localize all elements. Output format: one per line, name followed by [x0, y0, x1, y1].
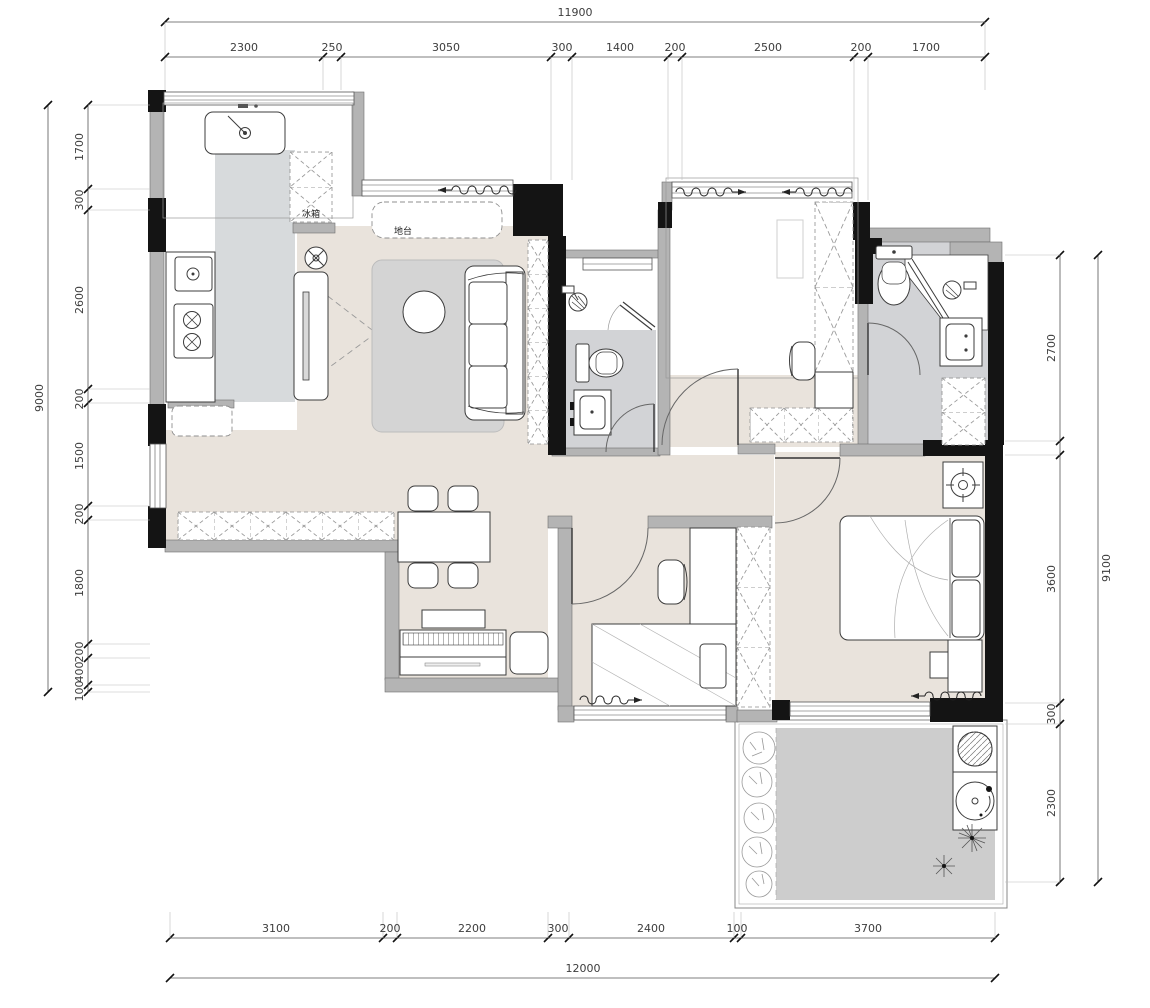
bedroom2-desk [815, 372, 853, 408]
dining-chair[interactable] [408, 486, 438, 511]
bedroom2-bottom-wardrobe [750, 408, 853, 442]
bathroom2-sink [940, 318, 982, 366]
dim-right-overall: 9100 [1100, 554, 1113, 582]
kitchen-sink [175, 257, 212, 291]
dim-top-seg2: 3050 [432, 41, 460, 54]
shower-glass-door[interactable] [620, 302, 655, 330]
platform-daybed [372, 202, 502, 238]
dim-bottom-seg2: 2200 [458, 922, 486, 935]
dining-chair[interactable] [408, 563, 438, 588]
master-balcony-door-window [790, 702, 930, 716]
dim-left-extensions [88, 105, 150, 692]
bedroom2-wardrobe [815, 202, 853, 372]
dining-chair[interactable] [448, 486, 478, 511]
bedroom3-bottom-window [574, 706, 726, 720]
dim-left-seg4: 1500 [73, 442, 86, 470]
dim-top-seg8: 1700 [912, 41, 940, 54]
dimension-bottom: 3100 200 2200 300 2400 100 3700 12000 [166, 912, 999, 982]
dim-left-seg5: 200 [73, 504, 86, 525]
dim-top-extensions [323, 57, 868, 200]
bedroom3-desk [690, 528, 736, 624]
dim-left-seg6: 1800 [73, 569, 86, 597]
bathroom2-cabinet [942, 378, 985, 445]
dining-table [398, 512, 490, 562]
kitchen-base-cabinet [172, 406, 232, 436]
dim-bottom-seg0: 3100 [262, 922, 290, 935]
dryer [953, 772, 997, 830]
kitchen-floor [215, 150, 295, 402]
ceiling-fan-icon [305, 247, 327, 269]
washing-machine [953, 726, 997, 772]
bedroom3-bed [592, 624, 736, 706]
toilet-2 [876, 246, 912, 305]
dim-right-seg4: 2300 [1045, 789, 1058, 817]
nightstand [943, 462, 983, 508]
dim-left-seg2: 2600 [73, 286, 86, 314]
pillow [952, 520, 980, 577]
sideboard [422, 610, 485, 628]
dim-left-overall: 9000 [33, 384, 46, 412]
piano [400, 630, 506, 675]
corridor-floor [548, 455, 774, 516]
dim-top-seg7: 200 [851, 41, 872, 54]
bathroom1-sink [570, 390, 611, 435]
coffee-table [403, 291, 445, 333]
dim-left-seg7: 200 [73, 642, 86, 663]
bedroom2-chair[interactable] [790, 342, 816, 380]
cooktop [174, 304, 213, 358]
dim-top-seg5: 200 [665, 41, 686, 54]
dim-left-seg9: 100 [73, 681, 86, 702]
tv-cabinet [294, 272, 328, 400]
laundry-tap [238, 104, 248, 108]
bathroom1-ledge [583, 258, 652, 270]
dim-bottom-seg6: 3700 [854, 922, 882, 935]
dim-bottom-overall: 12000 [566, 962, 601, 975]
dim-top-seg1: 250 [322, 41, 343, 54]
dim-top-seg4: 1400 [606, 41, 634, 54]
master-wardrobe [737, 527, 770, 707]
piano-stool[interactable] [510, 632, 548, 674]
floor-plan-canvas: 冰箱 [0, 0, 1150, 1008]
dim-top-overall: 11900 [558, 6, 593, 19]
dimension-right: 2700 3600 300 2300 9100 [1005, 251, 1113, 886]
dim-left-seg8: 400 [73, 662, 86, 683]
dim-right-seg2: 3600 [1045, 565, 1058, 593]
bedroom3-chair[interactable] [658, 560, 687, 604]
living-top-window [362, 180, 513, 196]
dimension-left: 9000 1700 300 2600 200 1500 200 1800 200… [33, 101, 150, 702]
dim-bottom-seg5: 100 [727, 922, 748, 935]
dim-top-seg3: 300 [552, 41, 573, 54]
platform-label: 地台 [394, 225, 412, 237]
entry-shoe-cabinet [178, 512, 394, 540]
pillow [952, 580, 980, 637]
dim-right-seg0: 2700 [1045, 334, 1058, 362]
dim-left-seg1: 300 [73, 190, 86, 211]
sofa [465, 266, 525, 420]
entry-left-window [150, 444, 166, 508]
dining-chair[interactable] [448, 563, 478, 588]
dim-top-seg6: 2500 [754, 41, 782, 54]
dim-bottom-seg1: 200 [380, 922, 401, 935]
dim-bottom-seg3: 300 [548, 922, 569, 935]
balcony [735, 720, 1007, 908]
bedside-table [948, 640, 982, 692]
master-bed [840, 516, 984, 640]
floor-plan-page: 冰箱 [0, 0, 1150, 1008]
tv-screen [303, 292, 309, 380]
stool[interactable] [930, 652, 948, 678]
dim-bottom-seg4: 2400 [637, 922, 665, 935]
dim-top-seg0: 2300 [230, 41, 258, 54]
dim-left-seg3: 200 [73, 389, 86, 410]
dim-right-seg3: 300 [1045, 704, 1058, 725]
bay-window-seat [777, 220, 803, 278]
dim-left-seg0: 1700 [73, 133, 86, 161]
sofa-back-cabinet [528, 240, 548, 444]
fridge-cabinet: 冰箱 [290, 152, 332, 222]
